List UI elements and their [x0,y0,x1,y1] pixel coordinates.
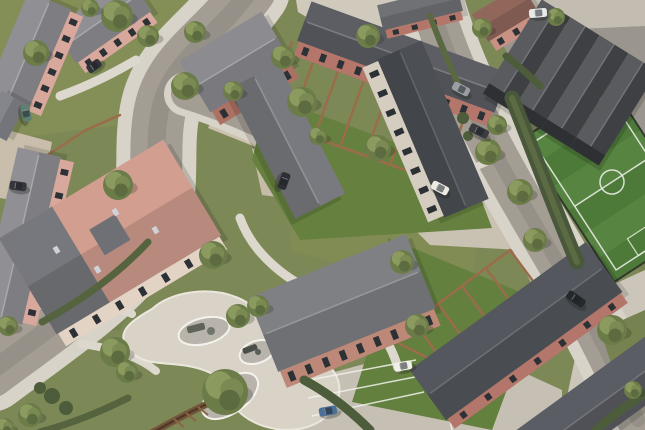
tree-canopy-dark [182,85,195,98]
aerial-render-canvas [0,0,645,430]
tree-canopy-dark [365,35,376,46]
tree-canopy-dark [124,371,134,381]
tree-canopy-dark [192,31,202,41]
tree-canopy-dark [255,305,265,315]
tree-canopy-dark [480,27,489,36]
tree-canopy-dark [554,16,562,24]
bush [59,401,73,415]
tree-canopy-dark [631,389,639,397]
play-equipment [207,327,215,335]
bush [44,388,60,404]
bush [457,112,469,124]
play-equipment [255,349,261,355]
tree-canopy-dark [375,147,387,159]
tree-canopy-dark [235,315,246,326]
tree-canopy-dark [88,7,96,15]
tree-canopy-dark [33,52,45,64]
tree-canopy-dark [517,191,529,203]
tree-canopy-dark [485,151,497,163]
tree-canopy-dark [145,35,155,45]
tree-canopy-dark [280,56,291,67]
tree-canopy-dark [414,325,425,336]
tree-canopy-dark [608,329,622,343]
car-windshield [535,10,536,16]
tree-canopy-dark [114,184,128,198]
tree-canopy-dark [6,325,15,334]
tree-canopy-dark [532,239,543,250]
tree-canopy-dark [210,254,223,267]
tree-canopy-dark [495,124,504,133]
tree-canopy-dark [298,101,312,115]
tree-canopy-dark [399,261,410,272]
tree-canopy-dark [27,414,38,425]
tree-canopy-dark [113,14,127,28]
tree-canopy-dark [219,390,240,411]
tree-canopy-dark [231,90,240,99]
tree-canopy-dark [316,135,324,143]
bush [34,382,46,394]
aerial-render-stage [0,0,645,430]
